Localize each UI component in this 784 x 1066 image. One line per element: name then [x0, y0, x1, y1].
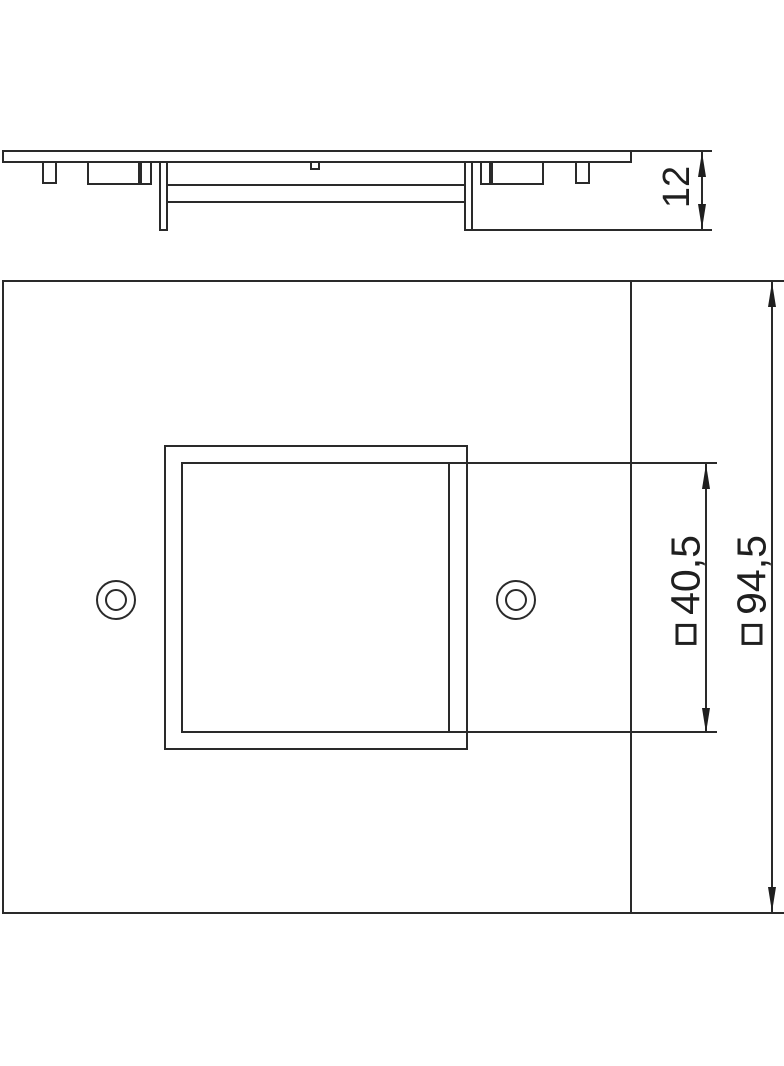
side-view-center-clip	[310, 161, 320, 170]
square-symbol-icon	[742, 624, 763, 645]
side-view-leg-left	[159, 161, 168, 231]
arrow-up-icon	[768, 282, 776, 307]
dimension-label-94-5: 94,5	[732, 535, 773, 645]
extension-line-top	[450, 462, 717, 464]
side-view-panel-edge-upper	[168, 184, 464, 186]
screw-hole-left-inner	[105, 589, 127, 611]
dimension-value: 94,5	[732, 535, 773, 615]
extension-line-bottom	[450, 731, 717, 733]
arrow-down-icon	[698, 204, 706, 229]
side-view-leg-right	[464, 161, 473, 231]
side-view-tab-right	[575, 161, 590, 184]
dimension-label-12: 12	[658, 166, 696, 208]
dimension-label-40-5: 40,5	[666, 535, 707, 645]
arrow-down-icon	[702, 708, 710, 733]
arrow-up-icon	[698, 152, 706, 177]
dimension-value: 12	[658, 166, 696, 208]
technical-drawing: 12 40,5	[0, 0, 784, 1066]
side-view-rib-left	[140, 161, 152, 185]
cutout-inner-square	[181, 462, 450, 733]
side-view-rib-right	[480, 161, 491, 185]
extension-line-bottom	[632, 912, 784, 914]
extension-line-top	[632, 280, 784, 282]
arrow-down-icon	[768, 887, 776, 912]
screw-hole-right-inner	[505, 589, 527, 611]
side-view-block-right	[491, 161, 544, 185]
side-view-block-left	[87, 161, 140, 185]
dimension-value: 40,5	[666, 535, 707, 615]
arrow-up-icon	[702, 464, 710, 489]
square-symbol-icon	[676, 624, 697, 645]
extension-line-bottom	[473, 229, 712, 231]
side-view-tab-left	[42, 161, 57, 184]
side-view-panel-edge-lower	[168, 201, 464, 203]
